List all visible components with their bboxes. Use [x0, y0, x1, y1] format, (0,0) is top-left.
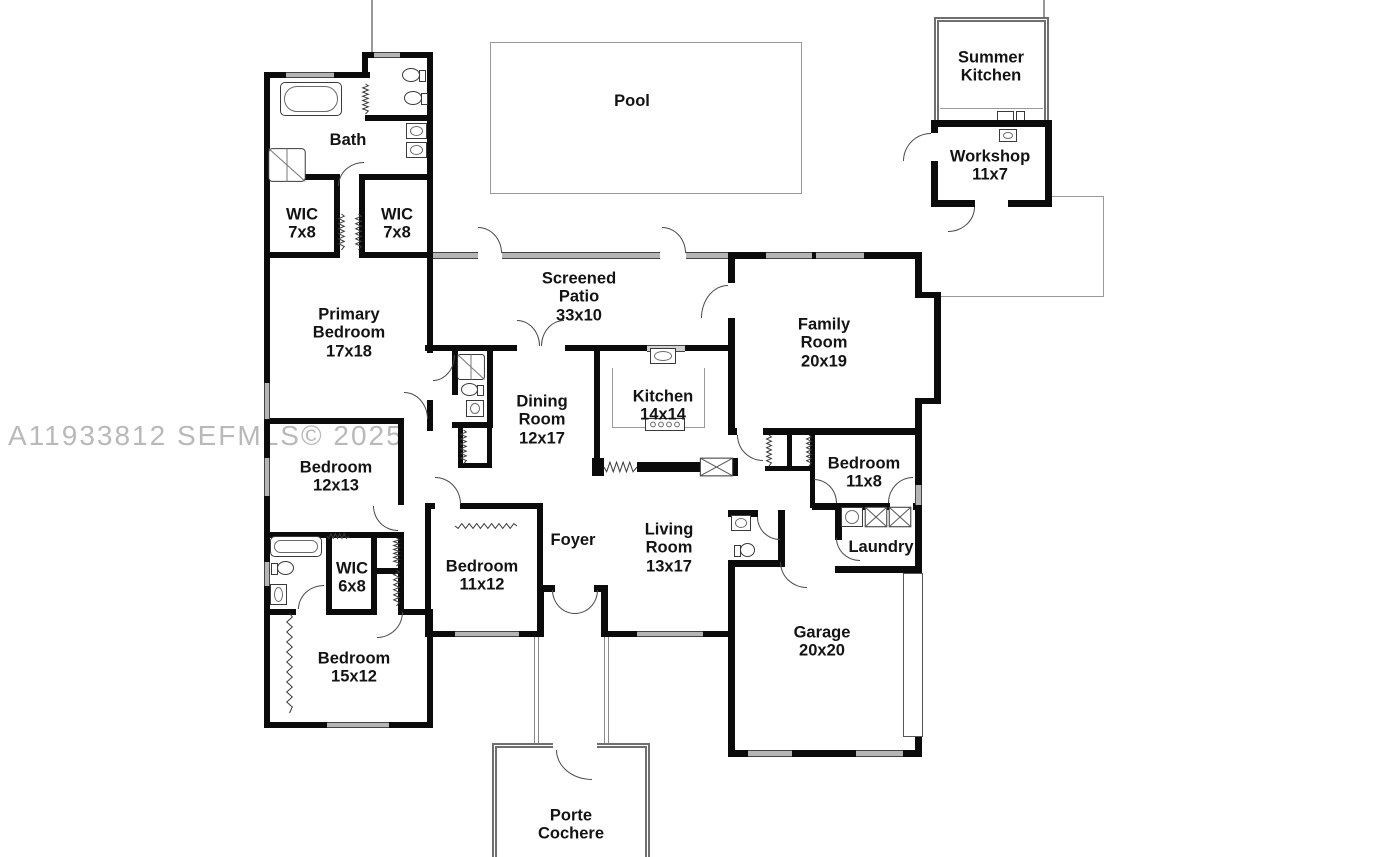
window [374, 52, 400, 58]
door-opening [931, 133, 938, 161]
room-label-bedroom-15x12: Bedroom15x12 [318, 650, 390, 687]
fence-line [1043, 0, 1045, 17]
room-name: WIC [381, 206, 413, 224]
room-name: Family Room [798, 315, 850, 352]
window [264, 458, 270, 496]
door-arc [780, 562, 807, 588]
door-arc [903, 133, 931, 161]
room-name: Foyer [551, 531, 596, 549]
door-arc [552, 590, 575, 614]
room-label-primary-bedroom: Primary Bedroom17x18 [313, 305, 385, 360]
room-dims: 14x14 [633, 406, 694, 424]
bathtub-icon [280, 82, 342, 116]
window [264, 383, 270, 419]
wall [398, 418, 404, 505]
summer-kitchen-counter [940, 108, 1043, 109]
room-name: Porte Cochere [538, 807, 604, 843]
room-dims: 11x8 [828, 473, 900, 491]
room-name: Bedroom [828, 455, 900, 473]
wall [637, 462, 700, 472]
bifold-door-icon [766, 435, 772, 466]
sink-icon [406, 142, 427, 158]
door-arc [757, 517, 780, 540]
counter-line [704, 368, 705, 428]
wall [601, 585, 608, 637]
sink-icon [406, 123, 427, 139]
sink-icon [466, 400, 484, 417]
wall [359, 174, 433, 180]
wall [460, 503, 540, 509]
window [637, 631, 703, 637]
sink-icon [731, 515, 751, 531]
toilet-icon [277, 561, 294, 575]
wall [427, 609, 433, 728]
door-arc [298, 585, 324, 609]
toilet-icon [404, 91, 422, 105]
room-name: Living Room [645, 520, 694, 557]
screen-window [433, 252, 478, 259]
bathtub-icon [270, 536, 322, 557]
room-name: Garage [794, 624, 851, 642]
bifold-door-icon [393, 538, 400, 566]
wall [934, 292, 941, 404]
wall [537, 503, 543, 592]
window [327, 722, 389, 728]
room-dims: 33x10 [542, 306, 616, 324]
room-name: WIC [336, 560, 368, 578]
room-name: Dining Room [516, 392, 567, 429]
wall [537, 585, 544, 637]
window [766, 252, 812, 259]
room-name: Bedroom [446, 558, 518, 576]
room-label-living-room: Living Room13x17 [645, 520, 694, 575]
door-arc [404, 392, 428, 419]
room-label-foyer: Foyer [551, 531, 596, 549]
room-name: Pool [614, 92, 650, 110]
wall [728, 428, 737, 435]
room-name: Bedroom [318, 650, 390, 668]
bifold-door-icon [327, 533, 349, 539]
room-label-summer-kitchen: Summer Kitchen [958, 49, 1024, 86]
room-name: Laundry [848, 538, 913, 556]
wall [264, 418, 404, 424]
room-label-bedroom-12x13: Bedroom12x13 [300, 459, 372, 496]
room-label-porte-cochere: Porte Cochere [538, 807, 604, 844]
room-label-bedroom-11x8: Bedroom11x8 [828, 455, 900, 492]
room-dims: 20x19 [798, 352, 850, 370]
wall [835, 566, 922, 573]
bifold-door-icon [460, 430, 467, 464]
door-opening [553, 742, 597, 750]
door-arc [701, 285, 728, 318]
wall [487, 351, 493, 428]
door-opening [975, 200, 1008, 207]
patio-outline [1103, 196, 1104, 297]
wall [728, 560, 785, 567]
wall [565, 345, 647, 351]
washer-icon [865, 507, 887, 527]
door-arc [575, 590, 598, 614]
patio-outline [941, 296, 1104, 297]
room-name: Screened Patio [542, 269, 616, 306]
walkway-line [604, 637, 609, 744]
wall [765, 466, 815, 471]
screen-window [686, 252, 728, 259]
pocket-door-icon [362, 84, 369, 114]
counter-line [612, 368, 613, 428]
laundry-sink-icon [841, 507, 863, 527]
room-dims: 11x12 [446, 576, 518, 594]
garage-door [903, 573, 923, 737]
room-label-wic-right: WIC7x8 [381, 206, 413, 243]
room-name: Workshop [950, 148, 1030, 166]
room-name: WIC [286, 206, 318, 224]
door-arc [338, 162, 364, 186]
room-dims: 17x18 [313, 342, 385, 360]
bifold-door-icon [338, 214, 345, 250]
floor-plan: A11933812 SEFMLS© 2025 [0, 0, 1374, 857]
room-name: Bedroom [300, 459, 372, 477]
door-arc [478, 227, 502, 253]
window [264, 562, 270, 586]
room-dims: 6x8 [336, 578, 368, 596]
pool-outline [490, 42, 802, 194]
window [856, 750, 903, 757]
window [915, 485, 922, 505]
wall [728, 318, 735, 433]
wall [326, 609, 375, 615]
bifold-door-icon [393, 570, 400, 606]
kitchen-sink-icon [650, 348, 676, 364]
room-dims: 12x13 [300, 477, 372, 495]
toilet-icon [740, 543, 755, 557]
room-dims: 7x8 [381, 224, 413, 242]
wall [487, 428, 492, 468]
room-dims: 12x17 [516, 429, 567, 447]
room-label-laundry: Laundry [848, 538, 913, 556]
room-name: Kitchen [633, 388, 694, 406]
room-dims: 15x12 [318, 668, 390, 686]
room-label-garage: Garage20x20 [794, 624, 851, 661]
wall [326, 532, 332, 615]
room-label-kitchen: Kitchen14x14 [633, 388, 694, 425]
wall [728, 560, 735, 757]
door-arc [948, 207, 975, 232]
room-label-workshop: Workshop11x7 [950, 148, 1030, 185]
patio-outline [1052, 196, 1104, 197]
room-dims: 20x20 [794, 642, 851, 660]
room-dims: 13x17 [645, 557, 694, 575]
dryer-icon [889, 507, 911, 527]
bifold-door-icon [286, 613, 293, 713]
sink-icon [270, 584, 287, 605]
wall [359, 252, 433, 258]
wall [733, 458, 738, 476]
toilet-icon [461, 383, 478, 396]
door-arc [377, 612, 403, 638]
room-label-wic-left: WIC7x8 [286, 206, 318, 243]
room-label-pool: Pool [614, 92, 650, 110]
room-name: Primary Bedroom [313, 305, 385, 342]
wall [787, 433, 792, 470]
wall [592, 458, 604, 476]
toilet-icon [402, 68, 420, 82]
wall [362, 52, 368, 78]
bifold-door-icon [604, 461, 637, 473]
room-name: Summer Kitchen [958, 49, 1024, 85]
room-label-family-room: Family Room20x19 [798, 315, 850, 370]
fence-line [371, 0, 373, 55]
room-label-dining-room: Dining Room12x17 [516, 392, 567, 447]
room-label-bath: Bath [330, 131, 367, 149]
room-dims: 7x8 [286, 224, 318, 242]
sink-icon [999, 129, 1017, 142]
door-arc [373, 506, 398, 531]
room-dims: 11x7 [950, 166, 1030, 184]
mls-watermark: A11933812 SEFMLS© 2025 [8, 420, 404, 452]
bifold-door-icon [355, 214, 362, 250]
room-label-bedroom-11x12: Bedroom11x12 [446, 558, 518, 595]
window [286, 72, 334, 78]
door-arc [662, 227, 686, 253]
wall [264, 252, 340, 258]
room-name: Bath [330, 131, 367, 149]
screen-window [502, 252, 660, 259]
window [455, 631, 519, 637]
door-arc [435, 477, 461, 504]
bifold-door-icon [455, 523, 517, 529]
walkway-line [534, 637, 539, 744]
wall [425, 345, 517, 351]
window [816, 252, 864, 259]
shower-icon [457, 354, 485, 380]
wall [427, 503, 435, 509]
door-arc [737, 435, 763, 461]
wall [365, 115, 433, 121]
bifold-door-icon [806, 435, 812, 466]
shower-icon [268, 148, 306, 182]
window [748, 750, 792, 757]
room-label-screened-patio: Screened Patio33x10 [542, 269, 616, 324]
door-arc [517, 320, 540, 346]
room-label-wic-6x8: WIC6x8 [336, 560, 368, 597]
pantry-icon [700, 458, 733, 476]
wall [594, 345, 600, 458]
